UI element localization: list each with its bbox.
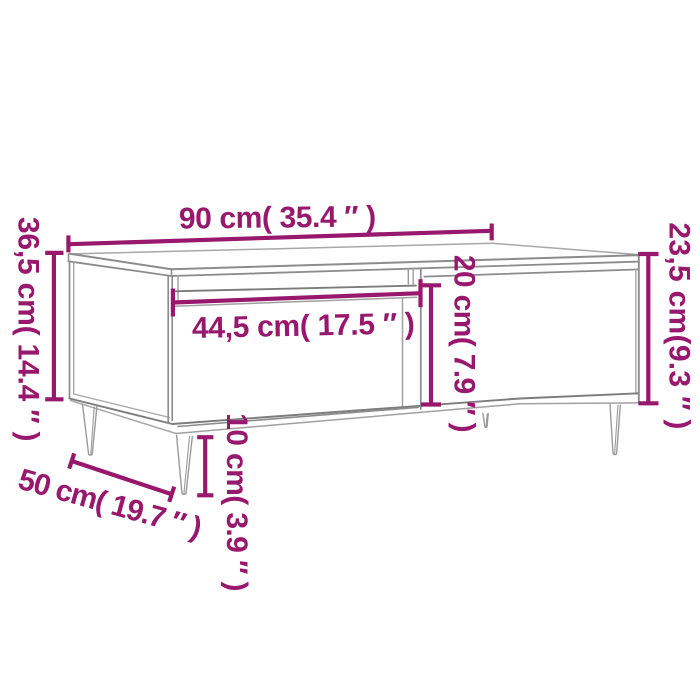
- svg-text:10 cm( 3.9 ″ ): 10 cm( 3.9 ″ ): [220, 413, 253, 591]
- svg-text:44,5 cm( 17.5 ″ ): 44,5 cm( 17.5 ″ ): [192, 307, 415, 345]
- svg-text:90 cm( 35.4 ″ ): 90 cm( 35.4 ″ ): [179, 200, 376, 235]
- svg-text:20 cm( 7.9 ″ ): 20 cm( 7.9 ″ ): [448, 255, 481, 432]
- svg-text:23,5 cm(9.3 ″ ): 23,5 cm(9.3 ″ ): [663, 222, 696, 429]
- svg-text:36,5 cm( 14.4 ″ ): 36,5 cm( 14.4 ″ ): [12, 217, 45, 441]
